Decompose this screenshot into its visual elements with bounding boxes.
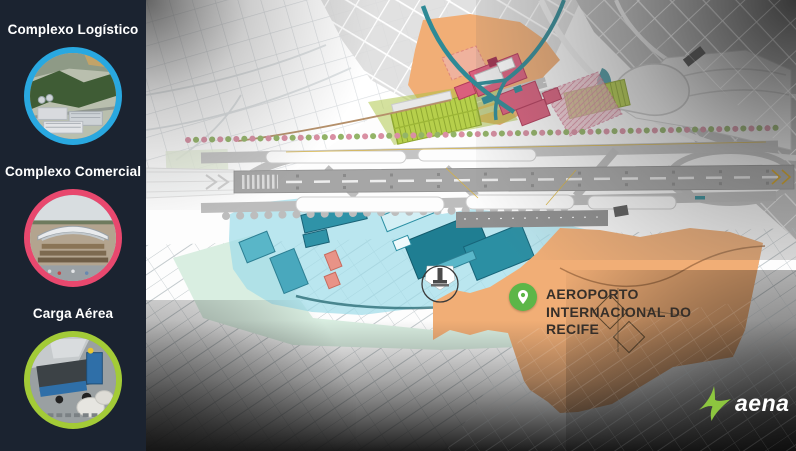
pin-glyph [515, 289, 531, 305]
logistics-photo [24, 47, 122, 145]
cargo-photo [24, 331, 122, 429]
aerial-commercial-complex-photo [30, 195, 116, 281]
airport-name-line: AEROPORTO [546, 286, 691, 304]
airport-callout: AEROPORTO INTERNACIONAL DO RECIFE [509, 283, 691, 339]
air-cargo-loader-photo [30, 337, 116, 423]
airport-name-line: RECIFE [546, 321, 691, 339]
sidebar-item-carga-aerea: Carga Aérea [24, 306, 122, 429]
aerial-logistics-park-photo [30, 53, 116, 139]
aena-star-icon [696, 384, 732, 422]
sidebar-item-label: Complexo Comercial [5, 164, 141, 179]
location-pin-icon [509, 283, 537, 311]
slide: Complexo Logístico Complexo Co [0, 0, 796, 451]
aena-logo: aena [696, 384, 789, 422]
sidebar: Complexo Logístico Complexo Co [0, 0, 146, 451]
sidebar-item-complexo-comercial: Complexo Comercial [5, 164, 141, 287]
sidebar-item-complexo-logistico: Complexo Logístico [8, 22, 139, 145]
airport-name-line: INTERNACIONAL DO [546, 304, 691, 322]
commercial-photo [24, 189, 122, 287]
airport-masterplan-map: AEROPORTO INTERNACIONAL DO RECIFE aena [146, 0, 796, 451]
sidebar-item-label: Complexo Logístico [8, 22, 139, 37]
sidebar-item-label: Carga Aérea [33, 306, 113, 321]
aena-wordmark: aena [735, 385, 789, 421]
airport-name: AEROPORTO INTERNACIONAL DO RECIFE [546, 283, 691, 339]
